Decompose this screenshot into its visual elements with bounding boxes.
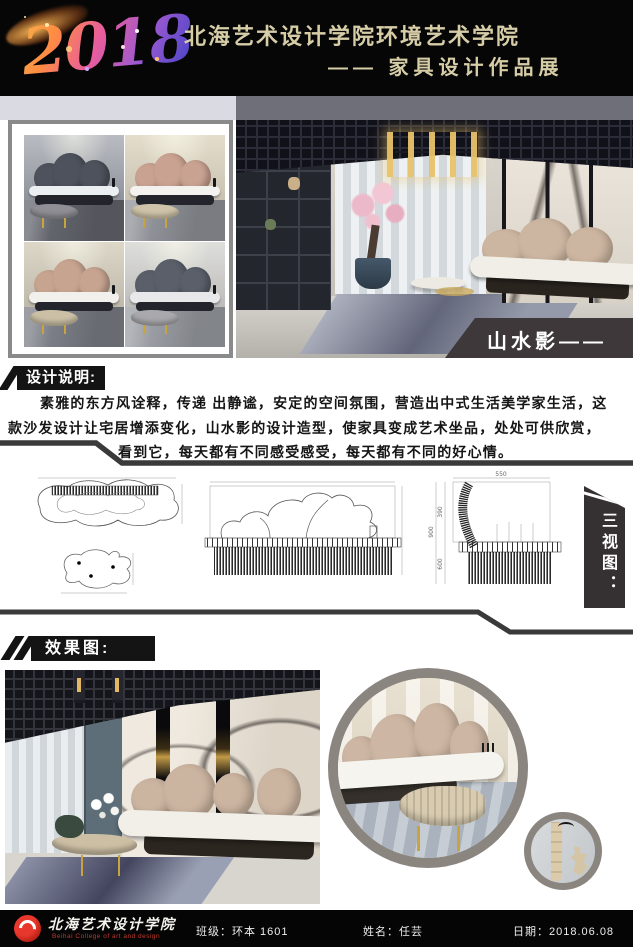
class-value: 环本 1601 (232, 926, 289, 938)
design-notes-line1: 素雅的东方风诠释，传递 出静谧，安定的空间氛围，营造出中式生活美学家生活，这 (40, 393, 608, 413)
header-band: 2018 北海艺术设计学院环境艺术学院 —— 家具设计作品展 (0, 0, 633, 96)
fx-sofa-cloud (213, 773, 254, 817)
three-views-banner: 三视图： (584, 486, 625, 608)
effects-label: 效果图: (31, 636, 155, 661)
effect-render-closeup-circle (328, 668, 528, 868)
three-views-label: 三视图： (595, 512, 619, 596)
coffee-table-lower (435, 287, 475, 297)
fx-sofa-cloud (257, 768, 301, 819)
name-value: 任芸 (399, 926, 423, 938)
exhibition-subtitle: —— 家具设计作品展 (328, 51, 564, 80)
class-field: 班级：环本 1601 (196, 923, 289, 939)
dim-height-upper: 390 (437, 506, 444, 518)
footer-band: 北海艺术设计学院 Beihai College of art and desig… (0, 910, 633, 947)
three-view-drawings: 550 390 600 900 (10, 470, 575, 612)
name-label: 姓名： (363, 926, 399, 938)
dim-height-lower: 600 (437, 558, 444, 570)
blossom-pot (355, 258, 391, 289)
fx-table-leg (118, 855, 120, 876)
design-notes-line2: 款沙发设计让宅居增添变化，山水影的设计造型，使家具变成艺术坐品，处处可供欣赏， (8, 418, 601, 438)
dim-height-total: 900 (428, 526, 435, 538)
poster: 2018 北海艺术设计学院环境艺术学院 —— 家具设计作品展 (0, 0, 633, 947)
fx-table-leg (81, 855, 83, 876)
closeup-table-leg (417, 826, 420, 851)
design-notes-label: 设计说明: (17, 366, 105, 390)
detail-wire (558, 822, 574, 832)
main-interior-render: 山水影—— (236, 120, 633, 358)
school-logo-icon (14, 915, 41, 942)
chandelier-candles (387, 132, 478, 177)
variant-grid (24, 135, 225, 347)
fx-lantern (74, 670, 85, 703)
band-right (236, 96, 633, 120)
fx-orchid (84, 792, 125, 834)
dim-width-top: 550 (495, 471, 507, 478)
date-value: 2018.06.08 (549, 926, 614, 938)
detail-cutout (571, 846, 588, 875)
effect-render-interior (5, 670, 320, 904)
banner-stripe-icon (582, 491, 633, 508)
zigzag-divider (0, 604, 633, 638)
school-title: 北海艺术设计学院环境艺术学院 (184, 19, 520, 51)
band-left (0, 96, 236, 120)
closeup-table-leg (457, 826, 460, 851)
sofa-render-dark (24, 135, 124, 241)
sofa-render-tan (24, 242, 124, 348)
sofa-render-gray (125, 242, 225, 348)
class-label: 班级： (196, 926, 232, 938)
date-label: 日期： (513, 926, 549, 938)
closeup-table (399, 786, 485, 826)
fx-bonsai (55, 815, 83, 838)
blossom-tree (339, 177, 418, 258)
date-field: 日期：2018.06.08 (513, 923, 614, 939)
project-name: 山水影—— (487, 325, 607, 354)
sparkle-dots-icon (24, 16, 26, 18)
sofa-render-tan-warm (125, 135, 225, 241)
name-field: 姓名：任芸 (363, 923, 423, 939)
fx-lantern (112, 670, 123, 703)
detail-render-circle (524, 812, 602, 890)
variant-panel-frame (8, 120, 233, 358)
year-text: 2018 (18, 0, 195, 97)
year-2018-logo: 2018 (6, 2, 181, 94)
footer-school-name: 北海艺术设计学院 (48, 914, 176, 934)
footer-school-name-en: Beihai College of art and design (52, 933, 160, 940)
zigzag-divider (0, 436, 633, 470)
swirl-icon (16, 917, 40, 941)
variant-panel (12, 124, 229, 354)
project-name-banner: 山水影—— (445, 318, 633, 358)
